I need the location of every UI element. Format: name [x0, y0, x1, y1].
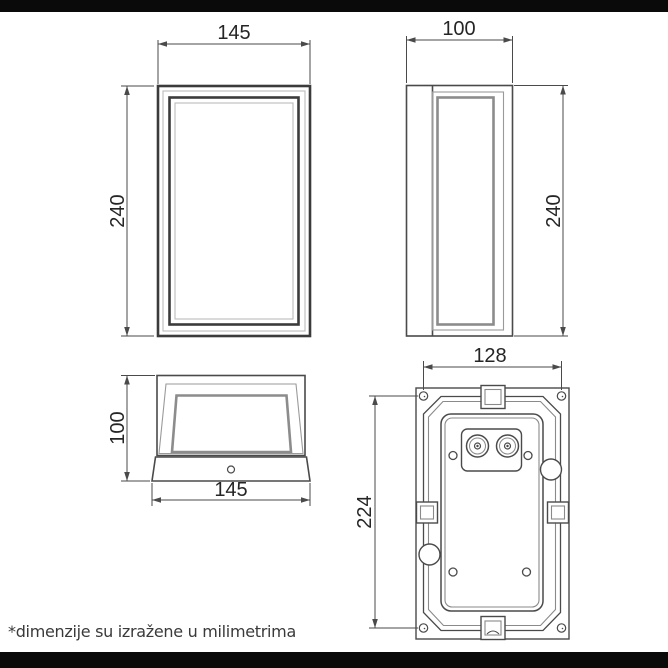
front-height-label: 240: [107, 194, 129, 227]
back-hole-spacing-height-label: 224: [354, 495, 376, 528]
top-wall-plate: [152, 457, 310, 481]
side-outer-outline: [407, 86, 513, 337]
side-height-label: 240: [543, 194, 565, 227]
mounting-hole: [419, 392, 427, 400]
arrowhead: [124, 376, 130, 385]
back-gear-plate: [441, 414, 543, 611]
arrowhead: [424, 364, 433, 370]
hole-center-dot: [424, 628, 426, 630]
top-knockout-inner: [485, 390, 501, 405]
left-knockout-inner: [421, 506, 434, 519]
hole-center-dot: [424, 396, 426, 398]
side-depth-dimension: 100: [407, 18, 513, 83]
mounting-hole: [557, 624, 565, 632]
back-hole-spacing-height-dimension: 224: [354, 396, 418, 628]
terminal-screw-dot: [506, 445, 508, 447]
arrowhead: [124, 86, 130, 95]
screw-hole: [449, 452, 457, 460]
screw-hole: [523, 568, 531, 576]
arrowhead: [152, 497, 161, 503]
screw-hole: [449, 568, 457, 576]
side-depth-label: 100: [442, 18, 475, 40]
screw-hole: [524, 452, 532, 460]
units-footnote: *dimenzije su izražene u milimetrima: [8, 622, 308, 641]
front-view: 145 240: [107, 22, 310, 336]
arrowhead: [124, 327, 130, 336]
arrowhead: [301, 497, 310, 503]
back-hole-spacing-width-dimension: 128: [424, 345, 562, 390]
front-outer-outline: [158, 86, 310, 336]
top-view: 100 145: [107, 376, 310, 507]
technical-drawing: 145 240 100: [0, 0, 668, 668]
arrowhead: [560, 327, 566, 336]
terminal-screw-dot: [476, 445, 478, 447]
arrowhead: [504, 37, 513, 43]
arrowhead: [124, 472, 130, 481]
front-width-dimension: 145: [158, 22, 310, 84]
front-width-label: 145: [217, 22, 250, 44]
side-view: 100 240: [407, 18, 569, 336]
hole-center-dot: [562, 396, 564, 398]
arrowhead: [553, 364, 562, 370]
right-knockout-inner: [552, 506, 565, 519]
top-width-dimension: 145: [152, 479, 310, 506]
back-view: 128 224: [354, 345, 569, 640]
cable-entry-right: [541, 459, 562, 480]
front-height-dimension: 240: [107, 86, 154, 336]
bottom-black-bar: [0, 652, 668, 668]
arrowhead: [560, 86, 566, 95]
side-height-dimension: 240: [514, 86, 568, 337]
top-housing-outline: [157, 376, 305, 456]
arrowhead: [372, 396, 378, 405]
cable-entry-left: [419, 544, 440, 565]
arrowhead: [407, 37, 416, 43]
top-depth-label: 100: [107, 411, 129, 444]
mounting-hole: [557, 392, 565, 400]
back-hole-spacing-width-label: 128: [473, 345, 506, 367]
arrowhead: [301, 41, 310, 47]
top-depth-dimension: 100: [107, 376, 155, 482]
top-width-label: 145: [214, 479, 247, 501]
arrowhead: [372, 619, 378, 628]
hole-center-dot: [562, 628, 564, 630]
mounting-hole: [419, 624, 427, 632]
arrowhead: [158, 41, 167, 47]
